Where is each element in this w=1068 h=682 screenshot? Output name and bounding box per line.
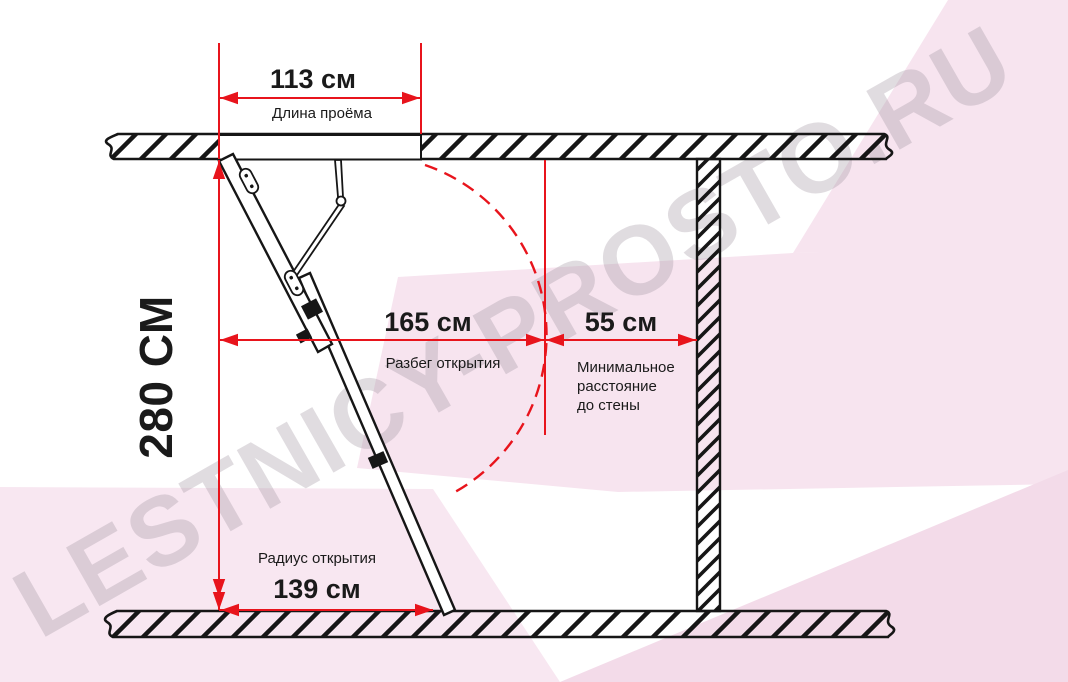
- dim-value-floor-height: 280 СМ: [130, 295, 182, 458]
- pivot-joint: [337, 197, 346, 206]
- dim-label-opening-run: Разбег открытия: [386, 355, 501, 372]
- attic-ladder-diagram: LESTNICY-PROSTO.RU: [0, 0, 1068, 682]
- dim-label-wall-distance-line2: расстояние: [577, 378, 657, 395]
- floor-hatch: [105, 611, 894, 637]
- diagram-svg: LESTNICY-PROSTO.RU: [0, 0, 1068, 682]
- dim-value-wall-distance: 55 см: [585, 307, 658, 337]
- support-arm: [293, 203, 344, 275]
- ceiling-slab: [106, 134, 892, 160]
- bg-polygon-bottom-right: [560, 470, 1068, 682]
- dim-value-opening-length: 113 см: [270, 64, 356, 94]
- hanger-rod: [335, 160, 343, 197]
- dim-label-wall-distance-line1: Минимальное: [577, 359, 675, 376]
- ceiling-opening: [219, 135, 421, 160]
- dim-label-wall-distance-line3: до стены: [577, 397, 640, 414]
- arrow-113-right: [402, 92, 420, 104]
- dim-label-opening-length: Длина проёма: [272, 105, 373, 122]
- arrow-165-left: [220, 334, 238, 346]
- wall: [697, 159, 720, 611]
- arrow-113-left: [220, 92, 238, 104]
- ladder-hatch-section: [219, 154, 332, 352]
- dim-value-opening-run: 165 см: [384, 307, 472, 337]
- dim-label-opening-radius: Радиус открытия: [258, 550, 376, 567]
- dim-value-opening-radius: 139 см: [273, 574, 361, 604]
